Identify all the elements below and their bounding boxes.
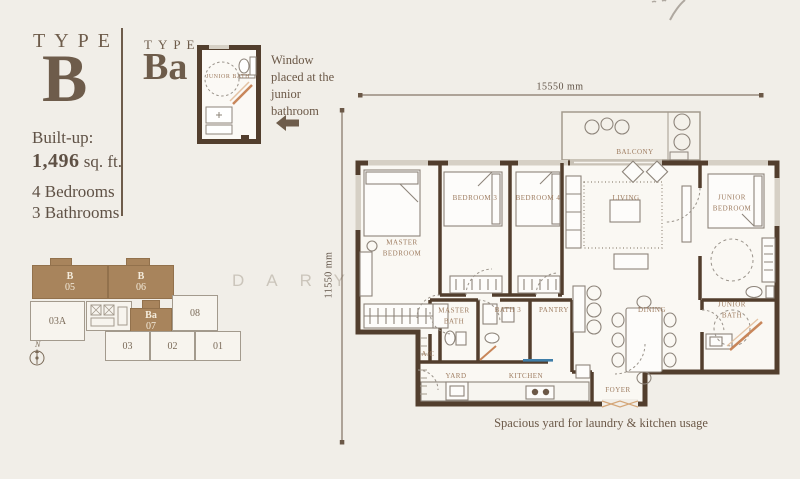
- room-label-ac: A/C: [421, 349, 434, 360]
- unit-03A-number: 03A: [49, 316, 66, 327]
- bedrooms-count: 4 Bedrooms: [32, 182, 115, 202]
- room-label-bedroom-3: BEDROOM 3: [453, 193, 498, 204]
- plan-caption: Spacious yard for laundry & kitchen usag…: [471, 416, 731, 431]
- key-plan: B 05 B 06 03A Ba 07 08 03 02 01: [18, 252, 250, 378]
- unit-06-number: 06: [109, 282, 173, 293]
- variant-type-letter: Ba: [143, 48, 187, 86]
- dimension-width-label: 15550 mm: [536, 82, 583, 93]
- key-plan-unit-01: 01: [195, 331, 241, 361]
- key-plan-unit-08: 08: [172, 295, 218, 331]
- compass-north-label: N: [35, 340, 40, 349]
- room-label-bedroom-4: BEDROOM 4: [516, 193, 561, 204]
- key-plan-unit-05: B 05: [32, 265, 108, 299]
- dimension-height-label: 11550 mm: [324, 252, 335, 299]
- room-label-junior-bedroom: JUNIOR BEDROOM: [706, 193, 758, 214]
- unit-02-number: 02: [168, 341, 178, 352]
- unit-01-number: 01: [213, 341, 223, 352]
- room-label-master-bath: MASTER BATH: [433, 306, 475, 327]
- built-up-value: 1,496 sq. ft.: [32, 150, 122, 173]
- key-plan-unit-06: B 06: [108, 265, 174, 299]
- key-plan-unit-03A: 03A: [30, 301, 85, 341]
- main-floor-plan: 15550 mm 11550 mm BALCONY MASTER BEDROOM…: [330, 60, 792, 470]
- variant-mini-floorplan: [197, 45, 261, 144]
- room-label-kitchen: KITCHEN: [509, 371, 543, 382]
- variant-mini-floorplan-drawing: [197, 45, 261, 144]
- floor-plan-drawing: [330, 60, 792, 470]
- built-up-number: 1,496: [32, 150, 80, 172]
- unit-07-type: Ba: [131, 310, 171, 321]
- key-plan-unit-03: 03: [105, 331, 150, 361]
- room-label-balcony: BALCONY: [616, 147, 653, 158]
- room-label-dining: DINING: [638, 305, 666, 316]
- built-up-unit: sq. ft.: [80, 152, 123, 171]
- key-plan-unit-02: 02: [150, 331, 195, 361]
- room-label-master-bedroom: MASTER BEDROOM: [376, 238, 428, 259]
- vertical-divider: [121, 28, 123, 216]
- built-up-label: Built-up:: [32, 128, 93, 148]
- room-label-junior-bath: JUNIOR BATH: [712, 300, 752, 321]
- unit-05-type: B: [33, 271, 107, 282]
- unit-08-number: 08: [190, 308, 200, 319]
- room-label-bath-3: BATH 3: [495, 305, 522, 316]
- arrow-left-icon: [276, 115, 300, 131]
- unit-03-number: 03: [123, 341, 133, 352]
- key-plan-core: [86, 301, 132, 331]
- signature-mark: [640, 0, 700, 22]
- variant-mini-room-label: JUNIOR BATH: [206, 73, 250, 82]
- room-label-living: LIVING: [612, 193, 639, 204]
- bathrooms-count: 3 Bathrooms: [32, 203, 119, 223]
- unit-05-number: 05: [33, 282, 107, 293]
- unit-06-type: B: [109, 271, 173, 282]
- type-letter: B: [42, 44, 87, 112]
- compass-icon: [28, 349, 46, 372]
- room-label-foyer: FOYER: [605, 385, 630, 396]
- room-label-yard: YARD: [445, 371, 466, 382]
- room-label-pantry: PANTRY: [539, 305, 569, 316]
